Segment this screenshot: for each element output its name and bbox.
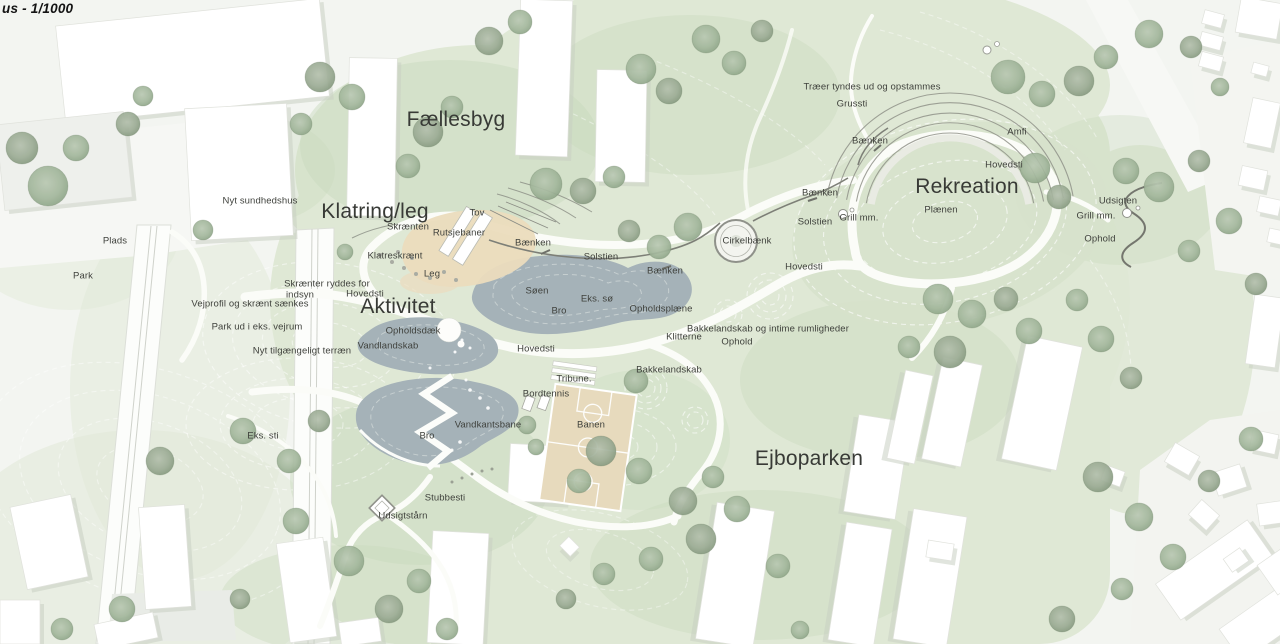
- tree: [339, 84, 365, 110]
- tree: [441, 96, 463, 118]
- tree: [528, 439, 544, 455]
- tree: [791, 621, 809, 639]
- building: [1257, 499, 1280, 529]
- tree: [475, 27, 503, 55]
- tree: [639, 547, 663, 571]
- tree: [305, 62, 335, 92]
- tree: [603, 166, 625, 188]
- tree: [656, 78, 682, 104]
- tree: [766, 554, 790, 578]
- tree: [6, 132, 38, 164]
- building: [347, 58, 402, 221]
- tree: [1120, 367, 1142, 389]
- tree: [751, 20, 773, 42]
- tree: [1180, 36, 1202, 58]
- tree: [1083, 462, 1113, 492]
- site-plan-graphics: [0, 0, 1280, 644]
- tree: [109, 596, 135, 622]
- tree: [146, 447, 174, 475]
- building: [0, 600, 44, 644]
- tree: [230, 418, 256, 444]
- grill-spot: [839, 210, 848, 219]
- tree: [958, 300, 986, 328]
- tree: [407, 569, 431, 593]
- tree: [1135, 20, 1163, 48]
- tree: [518, 416, 536, 434]
- tree: [375, 595, 403, 623]
- tree: [722, 51, 746, 75]
- opholdsdaek-deck: [437, 318, 461, 342]
- tree: [570, 178, 596, 204]
- tree: [1239, 427, 1263, 451]
- tree: [593, 563, 615, 585]
- tree: [1020, 153, 1050, 183]
- tree: [116, 112, 140, 136]
- tree: [1216, 208, 1242, 234]
- building: [138, 504, 195, 613]
- tree: [1144, 172, 1174, 202]
- tree: [1016, 318, 1042, 344]
- tree: [692, 25, 720, 53]
- tree: [1113, 158, 1139, 184]
- tree: [1029, 81, 1055, 107]
- tree: [1188, 150, 1210, 172]
- tree: [586, 436, 616, 466]
- tree: [1111, 578, 1133, 600]
- tree: [1245, 273, 1267, 295]
- tree: [724, 496, 750, 522]
- tree: [647, 235, 671, 259]
- tree: [994, 287, 1018, 311]
- tree: [567, 469, 591, 493]
- tree: [1125, 503, 1153, 531]
- tree: [934, 336, 966, 368]
- tree: [508, 10, 532, 34]
- tree: [230, 589, 250, 609]
- site-plan: FællesbygKlatring/legAktivitetRekreation…: [0, 0, 1280, 644]
- tree: [337, 244, 353, 260]
- tree: [1064, 66, 1094, 96]
- tree: [1049, 606, 1075, 632]
- tree: [702, 466, 724, 488]
- tree: [556, 589, 576, 609]
- tree: [626, 458, 652, 484]
- tree: [618, 220, 640, 242]
- tree: [51, 618, 73, 640]
- tree: [1047, 185, 1071, 209]
- building: [595, 70, 651, 187]
- tree: [686, 524, 716, 554]
- tree: [133, 86, 153, 106]
- tree: [308, 410, 330, 432]
- tree: [991, 60, 1025, 94]
- tree: [626, 54, 656, 84]
- tree: [674, 213, 702, 241]
- tree: [63, 135, 89, 161]
- tree: [923, 284, 953, 314]
- tree: [669, 487, 697, 515]
- grill-spot: [1123, 209, 1132, 218]
- tree: [1211, 78, 1229, 96]
- tree: [436, 618, 458, 640]
- tree: [193, 220, 213, 240]
- tree: [1066, 289, 1088, 311]
- tree: [334, 546, 364, 576]
- tree: [1088, 326, 1114, 352]
- tree: [283, 508, 309, 534]
- plan-title: us - 1/1000: [2, 1, 73, 16]
- tree: [413, 117, 443, 147]
- tree: [277, 449, 301, 473]
- tree: [1198, 470, 1220, 492]
- tree: [1094, 45, 1118, 69]
- tree: [624, 369, 648, 393]
- tree: [396, 154, 420, 178]
- tree: [1160, 544, 1186, 570]
- tree: [28, 166, 68, 206]
- tree: [1178, 240, 1200, 262]
- tree: [898, 336, 920, 358]
- tree: [290, 113, 312, 135]
- tree: [530, 168, 562, 200]
